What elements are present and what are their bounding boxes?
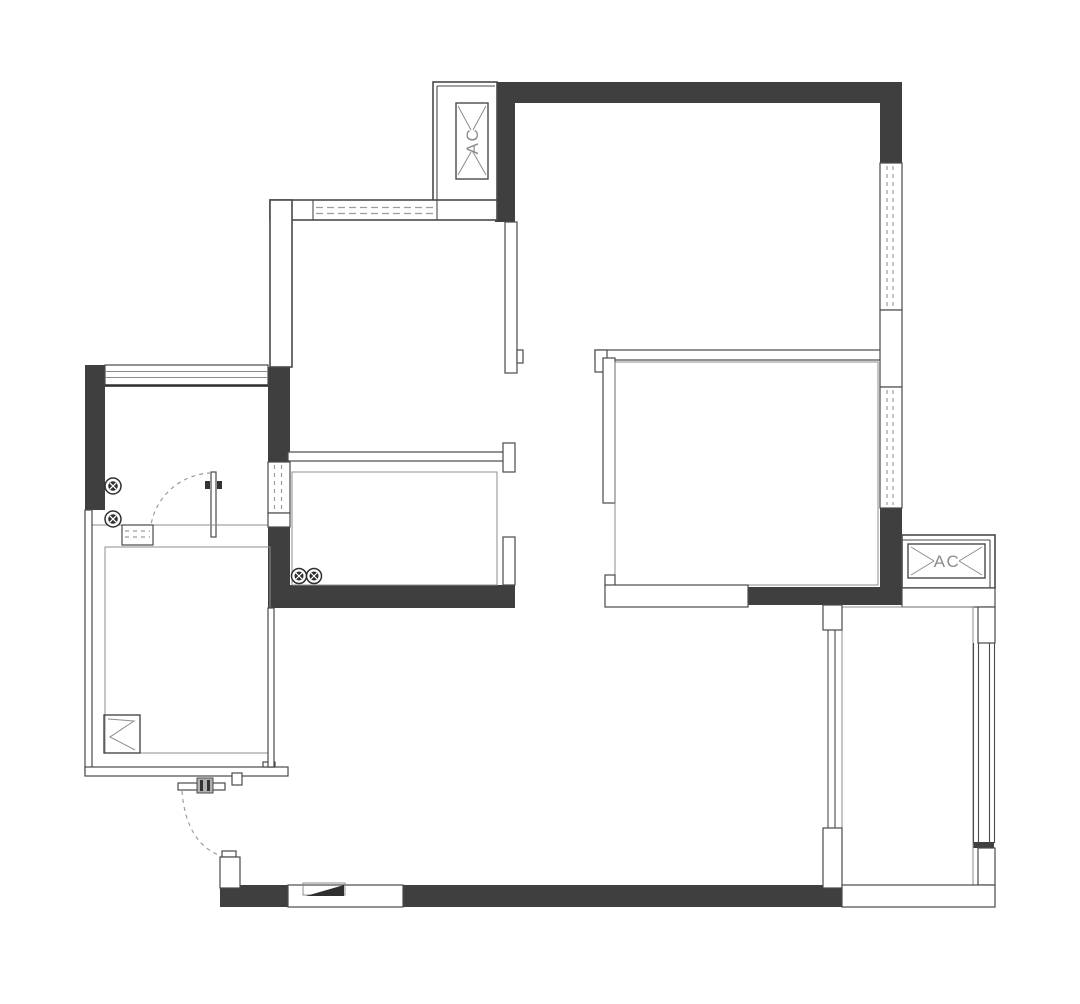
bedroom: [595, 350, 882, 607]
wall-left-thin: [85, 510, 92, 773]
wall-living-west: [268, 608, 274, 767]
balcony-wall-lower: [978, 848, 995, 885]
hall-west-wall: [505, 222, 517, 373]
entry-jamb-top: [232, 773, 242, 785]
fixture-lines: [108, 719, 135, 750]
door-hinge-mark: [217, 481, 222, 489]
wall-right-upper: [880, 103, 902, 163]
top-wall-window: [270, 200, 497, 367]
vent-window: [122, 525, 153, 545]
ac-unit-right: AC: [902, 535, 995, 588]
window-right-upper: [880, 163, 902, 310]
bedroom-floor-outline: [615, 362, 878, 585]
balcony-north-band: [902, 588, 995, 607]
bedroom-south-wall: [605, 585, 748, 607]
kitchen-room: [92, 365, 290, 545]
balcony-partition-top: [823, 605, 842, 630]
wall-left-exterior: [85, 365, 105, 510]
entry-door-swing: [182, 791, 221, 856]
kitchen-door-leaf: [211, 472, 216, 537]
door-hinge-mark: [205, 481, 210, 489]
pipe-riser-symbol: [105, 478, 121, 494]
kitchen-door-swing: [150, 473, 211, 536]
entry-door-hinge: [197, 778, 213, 793]
floor-plan-drawing: AC: [0, 0, 1080, 999]
room-floor-outline: [105, 547, 270, 753]
pass-window: [268, 462, 290, 513]
bath-door-jamb-bottom: [503, 537, 515, 585]
balcony: [823, 588, 995, 907]
bedroom-north-wall: [595, 350, 882, 360]
wall-south-thin: [85, 767, 288, 776]
kitchen-window: [105, 365, 268, 386]
bottom-threshold: [288, 883, 403, 907]
wall-between-windows: [880, 310, 902, 387]
wall-top: [497, 82, 902, 103]
bath-north-wall: [288, 452, 505, 461]
ac-unit-top: AC: [433, 82, 497, 218]
hallway: [505, 222, 523, 373]
entry-jamb-bottom: [220, 857, 240, 888]
pipe-riser-symbol: [307, 569, 322, 584]
pipe-riser-symbol: [292, 569, 307, 584]
entry-door: [178, 773, 242, 888]
balcony-south-wall: [842, 885, 995, 907]
right-wall-windows: [880, 163, 902, 508]
balcony-partition-bottom: [823, 828, 842, 888]
floor-plan-page: AC: [0, 0, 1080, 999]
entry-jamb-cap: [222, 851, 236, 857]
wall-bottom-main: [403, 885, 842, 907]
balcony-floor-outline: [842, 607, 973, 887]
wall-band-left: [270, 200, 292, 367]
bath-floor-outline: [292, 472, 497, 585]
window-right-lower: [880, 387, 902, 508]
wall-bath-south: [268, 585, 515, 608]
wall-gap: [268, 513, 290, 527]
bedroom-west-wall: [603, 358, 615, 503]
wall-ac-shaft-side: [495, 82, 515, 222]
wall-balcony-window-cap: [973, 842, 994, 848]
balcony-wall-upper: [978, 607, 995, 643]
wall-bedroom-south: [748, 587, 902, 605]
pipe-riser-symbol: [105, 511, 121, 527]
bathroom: [288, 443, 515, 585]
balcony-window: [974, 643, 995, 843]
wall-kitchen-east-upper: [268, 367, 290, 462]
bath-door-jamb-top: [503, 443, 515, 472]
hall-wall-notch: [517, 350, 523, 363]
entry-room: [85, 510, 288, 776]
wall-band-top: [270, 200, 497, 220]
ac-label-top: AC: [463, 128, 482, 155]
ac-label-right: AC: [934, 552, 961, 571]
